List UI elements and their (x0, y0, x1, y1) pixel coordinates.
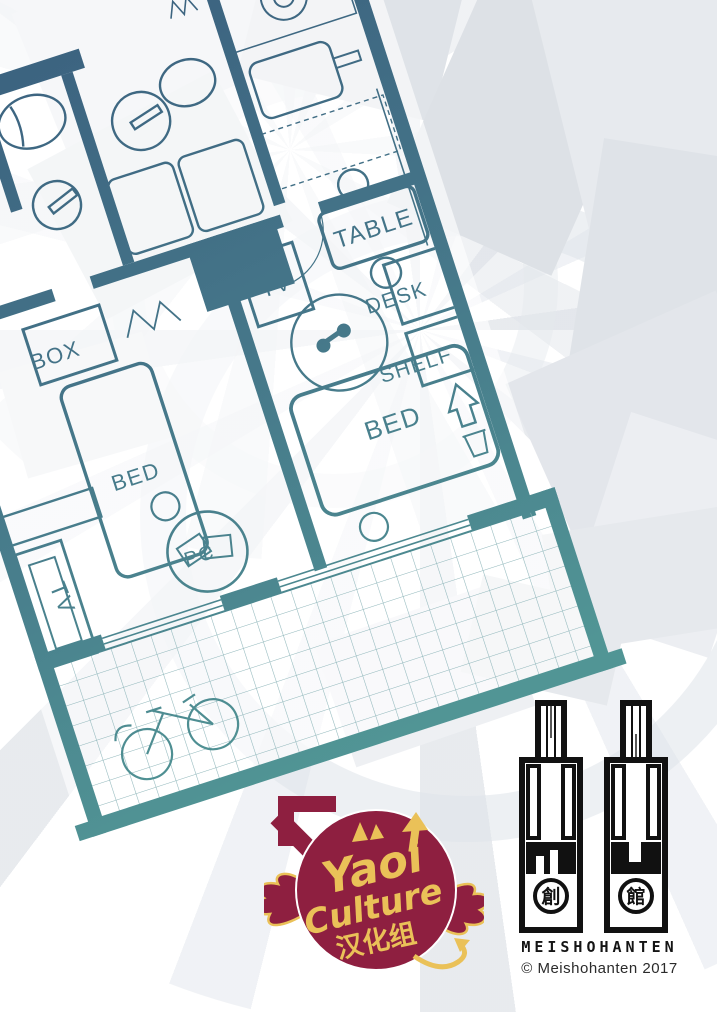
seal-icon-right: 館 (626, 885, 645, 908)
seal-icon-left: 創 (541, 885, 560, 908)
pen-icon-right: 館 (607, 703, 665, 930)
pen-logos: 創 館 (492, 698, 707, 938)
copyright-line: © Meishohanten 2017 (492, 960, 707, 977)
publisher-block: 創 館 MEISHOHANTEN © Meishohanten 2017 (492, 698, 707, 990)
yaoi-culture-logo: Yaoi Culture 汉化组 (264, 790, 484, 975)
pen-icon-left: 創 (522, 703, 580, 930)
publisher-wordmark: MEISHOHANTEN (492, 938, 707, 956)
credits-page: BOX BED TV PC TV TABLE (0, 0, 717, 1012)
